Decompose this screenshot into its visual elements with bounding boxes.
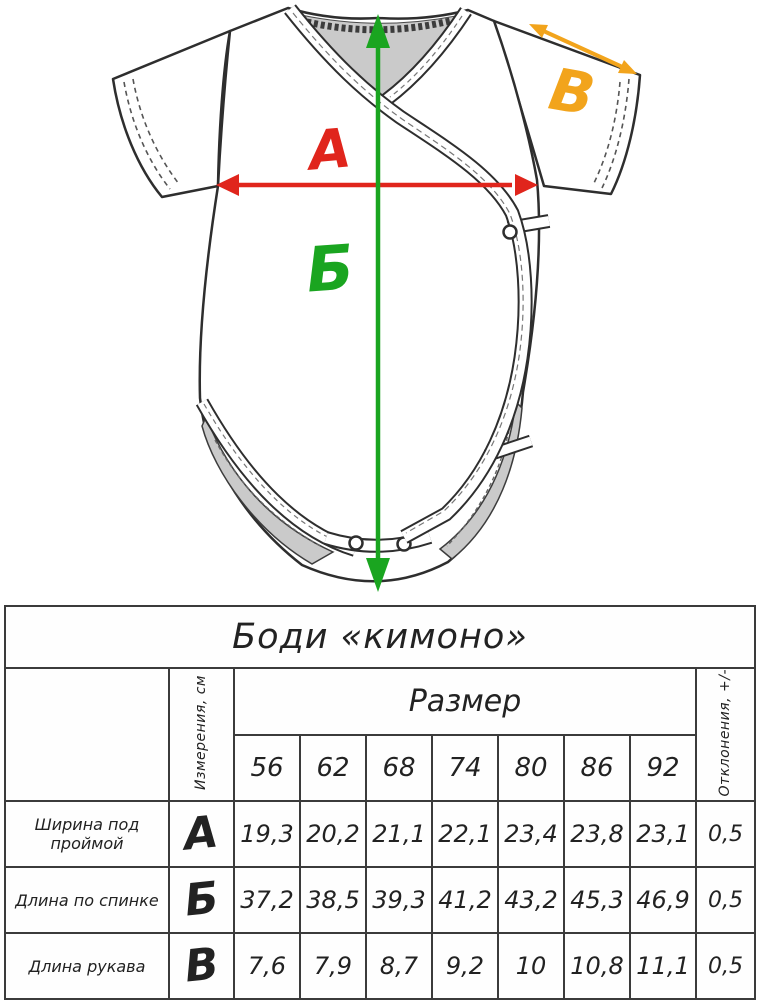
measurement-name: Длина рукава	[5, 933, 169, 999]
deviation-header: Отклонения, +/-	[718, 669, 733, 796]
value-cell: 7,6	[234, 933, 300, 999]
left-sleeve	[113, 31, 230, 197]
value-cell: 23,8	[564, 801, 630, 867]
value-cell: 46,9	[630, 867, 696, 933]
value-cell: 9,2	[432, 933, 498, 999]
value-cell: 19,3	[234, 801, 300, 867]
size-chart-page: А Б В Боди «кимоно»	[0, 0, 758, 1000]
letter-glyph: А	[182, 811, 220, 858]
value-cell: 7,9	[300, 933, 366, 999]
value-cell: 10	[498, 933, 564, 999]
table-title: Боди «кимоно»	[5, 606, 755, 668]
size-cell: 92	[630, 735, 696, 802]
table-row-width-under-armhole: Ширина под проймой А 19,3 20,2 21,1 22,1…	[5, 801, 755, 867]
size-header-cell: Размер	[234, 668, 696, 735]
value-cell: 11,1	[630, 933, 696, 999]
value-cell: 38,5	[300, 867, 366, 933]
measure-label-a: А	[302, 116, 353, 183]
measurement-letter: В	[169, 933, 234, 999]
measurements-header-cell: Измерения, см	[169, 668, 234, 801]
deviation-cell: 0,5	[696, 867, 755, 933]
size-cell: 80	[498, 735, 564, 802]
bodysuit-diagram: А Б В	[0, 0, 758, 605]
measure-label-b: Б	[304, 230, 356, 306]
value-cell: 45,3	[564, 867, 630, 933]
measurement-letter: Б	[169, 867, 234, 933]
letter-glyph: Б	[183, 877, 221, 924]
value-cell: 41,2	[432, 867, 498, 933]
value-cell: 10,8	[564, 933, 630, 999]
value-cell: 23,1	[630, 801, 696, 867]
measurement-name: Длина по спинке	[5, 867, 169, 933]
value-cell: 43,2	[498, 867, 564, 933]
value-cell: 22,1	[432, 801, 498, 867]
measurements-header: Измерения, см	[194, 675, 209, 790]
deviation-cell: 0,5	[696, 801, 755, 867]
bodysuit-drawing: А Б В	[0, 0, 758, 605]
letter-glyph: В	[183, 943, 221, 990]
table-header-row: Измерения, см Размер Отклонения, +/-	[5, 668, 755, 735]
empty-header-cell	[5, 668, 169, 801]
value-cell: 23,4	[498, 801, 564, 867]
size-cell: 56	[234, 735, 300, 802]
measurement-letter: А	[169, 801, 234, 867]
table-title-row: Боди «кимоно»	[5, 606, 755, 668]
deviation-header-cell: Отклонения, +/-	[696, 668, 755, 801]
deviation-cell: 0,5	[696, 933, 755, 999]
value-cell: 21,1	[366, 801, 432, 867]
value-cell: 20,2	[300, 801, 366, 867]
measurement-name: Ширина под проймой	[5, 801, 169, 867]
side-snap-button	[504, 226, 517, 239]
size-table: Боди «кимоно» Измерения, см Размер Откло…	[4, 605, 756, 1000]
table-row-back-length: Длина по спинке Б 37,2 38,5 39,3 41,2 43…	[5, 867, 755, 933]
value-cell: 39,3	[366, 867, 432, 933]
value-cell: 8,7	[366, 933, 432, 999]
size-cell: 74	[432, 735, 498, 802]
snap-button	[350, 537, 363, 550]
table-row-sleeve-length: Длина рукава В 7,6 7,9 8,7 9,2 10 10,8 1…	[5, 933, 755, 999]
size-cell: 86	[564, 735, 630, 802]
size-cell: 62	[300, 735, 366, 802]
value-cell: 37,2	[234, 867, 300, 933]
size-cell: 68	[366, 735, 432, 802]
